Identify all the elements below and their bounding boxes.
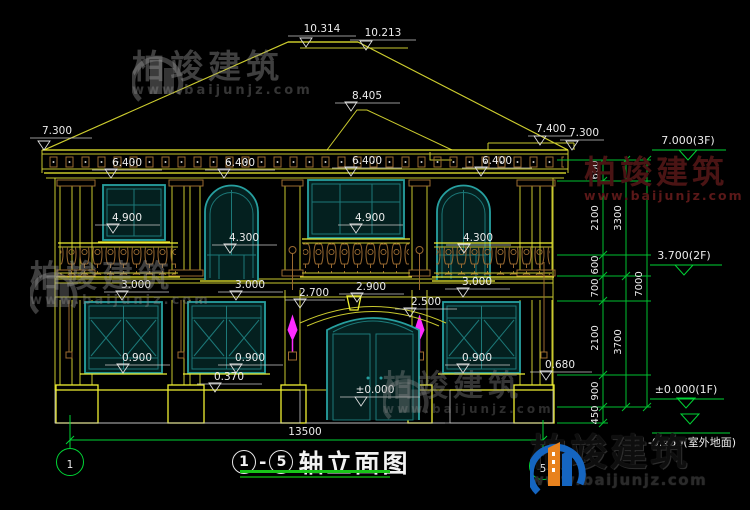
dim-ridge-rear: 10.213 (365, 27, 402, 39)
title-underline (240, 470, 390, 473)
level-markers: 7.000(3F) 3.700(2F) ±0.000(1F) -0.450(室外… (648, 134, 736, 449)
dim-eave-right: 7.300 (569, 127, 599, 139)
hip-roof (44, 42, 574, 160)
chain-dim-2100b: 2100 (590, 325, 601, 350)
chain-dim-2100a: 2100 (590, 205, 601, 230)
dim-f1-sill-right: 0.900 (462, 352, 492, 364)
dim-cornice-3: 6.400 (352, 155, 382, 167)
dim-eave-left: 7.300 (42, 125, 72, 137)
dim-f1-header-left: 3.000 (121, 279, 151, 291)
dim-ledge-right: 0.680 (545, 359, 575, 371)
chain-dim-450: 450 (590, 405, 601, 424)
chain-dim-700: 700 (590, 278, 601, 297)
chain-dim-900: 900 (590, 381, 601, 400)
dim-cornice-4: 6.400 (482, 155, 512, 167)
level-2f: 3.700(2F) (657, 249, 710, 262)
chain-dim-7000: 7000 (634, 271, 645, 296)
title-text: 轴立面图 (298, 444, 410, 480)
porch-roof-ridge (327, 110, 452, 160)
dim-f1-header-right: 3.000 (462, 276, 492, 288)
chain-dim-3700: 3700 (613, 329, 624, 354)
dim-total-width: 13500 (288, 426, 321, 438)
dim-porch-left: 2.700 (299, 287, 329, 299)
dim-cornice-1: 6.400 (112, 157, 142, 169)
elevation-drawing: 10.314 10.213 8.405 7.300 7.400 7.300 6.… (0, 0, 750, 510)
cad-elevation-screenshot: 10.314 10.213 8.405 7.300 7.400 7.300 6.… (0, 0, 750, 510)
chain-dim-600a: 600 (590, 160, 601, 179)
drawing-title: 1 - 5 轴立面图 (232, 444, 411, 480)
dim-f1-sill-mid: 0.900 (235, 352, 265, 364)
chain-dim-600b: 600 (590, 255, 601, 274)
axis-bubble-right: 5 (530, 453, 557, 480)
dim-eave-right-upper: 7.400 (536, 123, 566, 135)
right-dimension-chain: 600 2100 600 700 2100 900 450 3300 3700 … (557, 156, 651, 427)
title-underline-2 (240, 476, 390, 478)
dim-f1-sill-left: 0.900 (122, 352, 152, 364)
stone-base (55, 390, 553, 423)
chain-dim-3300: 3300 (613, 205, 624, 230)
wall-lamp-left (288, 316, 297, 360)
axis-bubble-right-label: 5 (540, 463, 547, 475)
dim-f1-header-mid: 3.000 (235, 279, 265, 291)
axis-bubble-left-label: 1 (67, 459, 74, 471)
dim-f2-arch-left: 4.300 (229, 232, 259, 244)
dim-ridge-main: 10.314 (304, 23, 341, 35)
dim-porch-right: 2.500 (411, 296, 441, 308)
window-2f-center (308, 180, 404, 238)
dim-f2-sill-left: 4.900 (112, 212, 142, 224)
dim-f2-arch-right: 4.300 (463, 232, 493, 244)
dim-f2-sill-center: 4.900 (355, 212, 385, 224)
dim-entry-level: ±0.000 (356, 384, 395, 396)
dim-cornice-2: 6.400 (225, 157, 255, 169)
dim-base-top: 0.370 (214, 371, 244, 383)
axis-bubble-left: 1 (57, 449, 84, 476)
level-3f: 7.000(3F) (661, 134, 714, 147)
dim-porch-top: 2.900 (356, 281, 386, 293)
level-1f: ±0.000(1F) (655, 383, 718, 396)
level-ground: -0.450(室外地面) (648, 435, 736, 449)
dim-porch-ridge: 8.405 (352, 90, 382, 102)
entrance-door (300, 296, 446, 423)
